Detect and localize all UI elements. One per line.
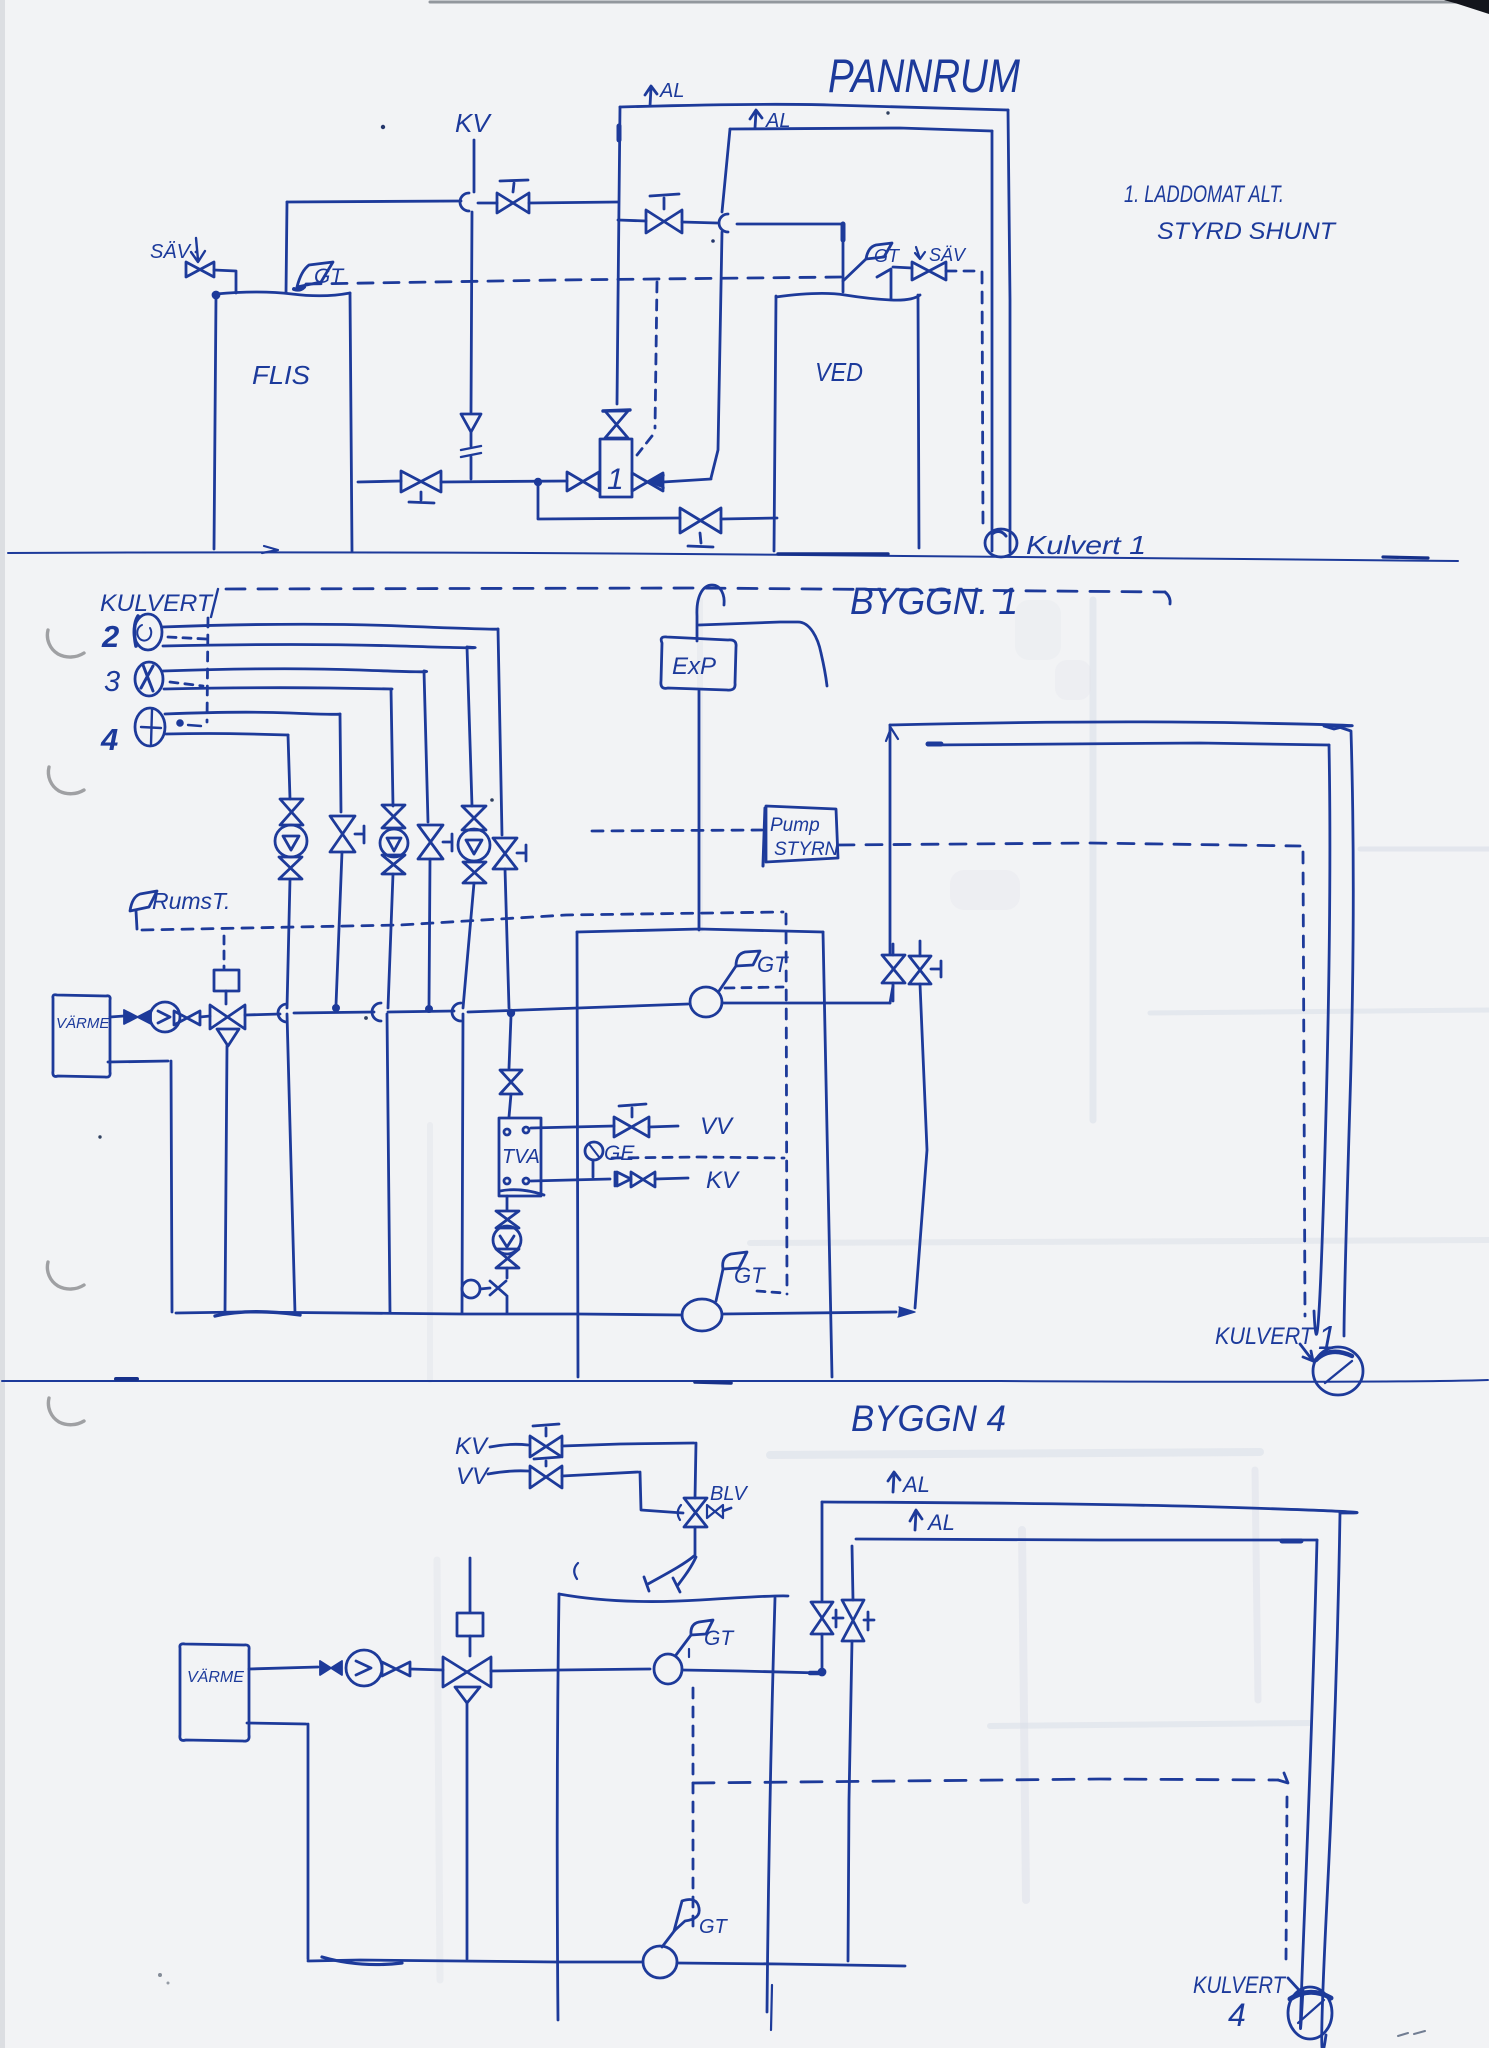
svg-text:AL: AL — [926, 1510, 955, 1535]
svg-text:AL: AL — [659, 80, 684, 102]
svg-text:KULVERT: KULVERT — [1193, 1972, 1287, 1999]
svg-text:SÄV: SÄV — [929, 245, 967, 265]
svg-text:BYGGN 4: BYGGN 4 — [851, 1398, 1006, 1439]
svg-text:ExP: ExP — [672, 653, 716, 680]
svg-text:Kulvert 1: Kulvert 1 — [1026, 530, 1146, 560]
svg-text:BYGGN. 1: BYGGN. 1 — [850, 581, 1018, 623]
svg-text:GT: GT — [314, 265, 345, 288]
svg-text:VV: VV — [700, 1113, 734, 1140]
svg-text:1: 1 — [1318, 1319, 1336, 1356]
svg-text:GT: GT — [699, 1916, 729, 1938]
svg-text:KULVERT: KULVERT — [100, 590, 214, 617]
svg-text:AL: AL — [901, 1472, 930, 1497]
svg-text:3: 3 — [104, 666, 120, 698]
svg-text:GE: GE — [604, 1142, 635, 1165]
svg-text:1. LADDOMAT ALT.: 1. LADDOMAT ALT. — [1124, 181, 1284, 208]
svg-text:RumsT.: RumsT. — [152, 888, 230, 914]
svg-text:Pump: Pump — [770, 815, 820, 836]
svg-text:STYRD SHUNT: STYRD SHUNT — [1157, 218, 1337, 245]
svg-text:GT: GT — [874, 246, 901, 266]
svg-text:STYRN: STYRN — [774, 839, 839, 860]
svg-text:KV: KV — [706, 1167, 740, 1194]
svg-text:SÄV: SÄV — [150, 241, 192, 263]
svg-text:VÄRME: VÄRME — [187, 1668, 244, 1686]
svg-text:KV: KV — [455, 108, 492, 138]
svg-text:BLV: BLV — [710, 1483, 748, 1505]
svg-text:KV: KV — [455, 1433, 489, 1460]
svg-text:FLIS: FLIS — [252, 360, 311, 390]
svg-text:VÄRME: VÄRME — [56, 1015, 110, 1032]
svg-text:1: 1 — [607, 463, 624, 496]
svg-text:GT: GT — [734, 1263, 766, 1288]
svg-text:TVA: TVA — [502, 1146, 540, 1168]
svg-text:VV: VV — [456, 1463, 490, 1490]
svg-text:KULVERT: KULVERT — [1215, 1323, 1315, 1350]
svg-text:AL: AL — [765, 110, 790, 132]
svg-text:GT: GT — [757, 952, 789, 977]
svg-text:VED: VED — [815, 357, 863, 387]
svg-text:4: 4 — [1228, 1997, 1246, 2033]
svg-text:PANNRUM: PANNRUM — [828, 49, 1021, 102]
svg-text:GT: GT — [704, 1627, 735, 1650]
svg-text:4: 4 — [100, 722, 118, 757]
svg-text:2: 2 — [101, 619, 119, 654]
